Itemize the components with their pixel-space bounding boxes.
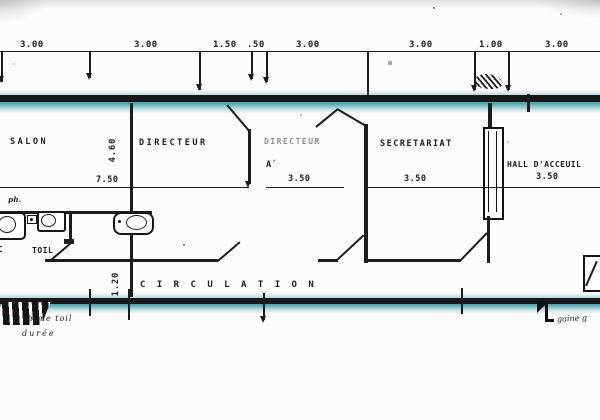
note-bottom-left-1: vh-me toil <box>22 314 72 323</box>
wall-hall-upper <box>488 103 492 129</box>
dimension-label: 1.50 <box>213 40 237 50</box>
dim-tick <box>461 288 463 314</box>
floor-plan-scan: 3.00 3.00 1.50 .50 3.00 3.00 1.00 3.00 <box>0 0 600 420</box>
wall-adjoint-secretariat <box>364 124 368 263</box>
room-dimension-line <box>266 187 344 188</box>
entrance-tick <box>527 94 530 112</box>
dimension-label: 1.00 <box>479 40 503 50</box>
room-label-directeur: DIRECTEUR <box>139 138 208 148</box>
depth-dim-circulation: 1.20 <box>111 272 121 296</box>
directeur-door-leaf <box>248 129 251 184</box>
wall-top-highlight <box>0 90 600 114</box>
note-bottom-left-2: durée <box>22 329 56 338</box>
scan-specks <box>0 0 2 2</box>
dimension-label: 3.00 <box>296 40 320 50</box>
column-inner-lines <box>488 131 497 212</box>
room-label-adjoint-sub: A´ <box>266 160 276 170</box>
hook-arrow-foot <box>545 319 554 322</box>
door-swing <box>335 234 365 262</box>
wall-top <box>0 95 600 102</box>
ph-annotation: ph. <box>8 195 21 204</box>
room-dimension-line <box>368 187 600 188</box>
tick-arrow <box>248 74 254 81</box>
door-swing <box>459 232 488 262</box>
dimension-label: 3.00 <box>409 40 433 50</box>
room-dimension-line <box>0 187 249 188</box>
note-gaine: gaine g <box>557 313 587 324</box>
tick-arrow <box>0 76 4 83</box>
sink-bowl-icon <box>126 215 147 230</box>
circulation-wall <box>366 259 461 262</box>
dim-tick <box>89 289 91 316</box>
dimension-label: 3.00 <box>134 40 158 50</box>
entrance-door-hatch <box>475 74 502 89</box>
dimension-label: .50 <box>247 40 265 50</box>
room-label-hall: HALL D'ACCEUIL <box>507 160 581 169</box>
room-label-secretariat: SECRETARIAT <box>380 139 453 149</box>
sink-drain-icon <box>118 220 121 223</box>
width-dim-hall: 3.50 <box>536 172 558 182</box>
room-label-circulation: C I R C U L A T I O N <box>140 280 317 290</box>
width-dim-salon: 7.50 <box>96 175 118 185</box>
tick-arrow <box>263 77 269 84</box>
tick-arrow <box>86 73 92 80</box>
dimension-label: 3.00 <box>20 40 44 50</box>
wall-hall-lower <box>487 216 490 263</box>
door-swing <box>217 241 241 262</box>
room-label-directeur-adjoint: DIRECTEUR <box>264 137 321 146</box>
room-label-toilet: TOIL <box>32 246 53 255</box>
toilet-bowl-icon <box>41 214 56 227</box>
room-label-salon: SALON <box>10 137 48 147</box>
wall-salon-directeur <box>130 103 133 297</box>
tick-arrow <box>260 316 266 323</box>
width-dim-adjoint: 3.50 <box>288 174 310 184</box>
circulation-wall <box>45 259 218 262</box>
width-dim-secretariat: 3.50 <box>404 174 426 184</box>
dimension-label: 3.00 <box>545 40 569 50</box>
wc-label: WC <box>0 245 3 254</box>
depth-dim-rooms: 4.60 <box>108 138 118 162</box>
valve-dot-icon <box>30 218 33 221</box>
toilet-divider-wall <box>69 211 72 242</box>
